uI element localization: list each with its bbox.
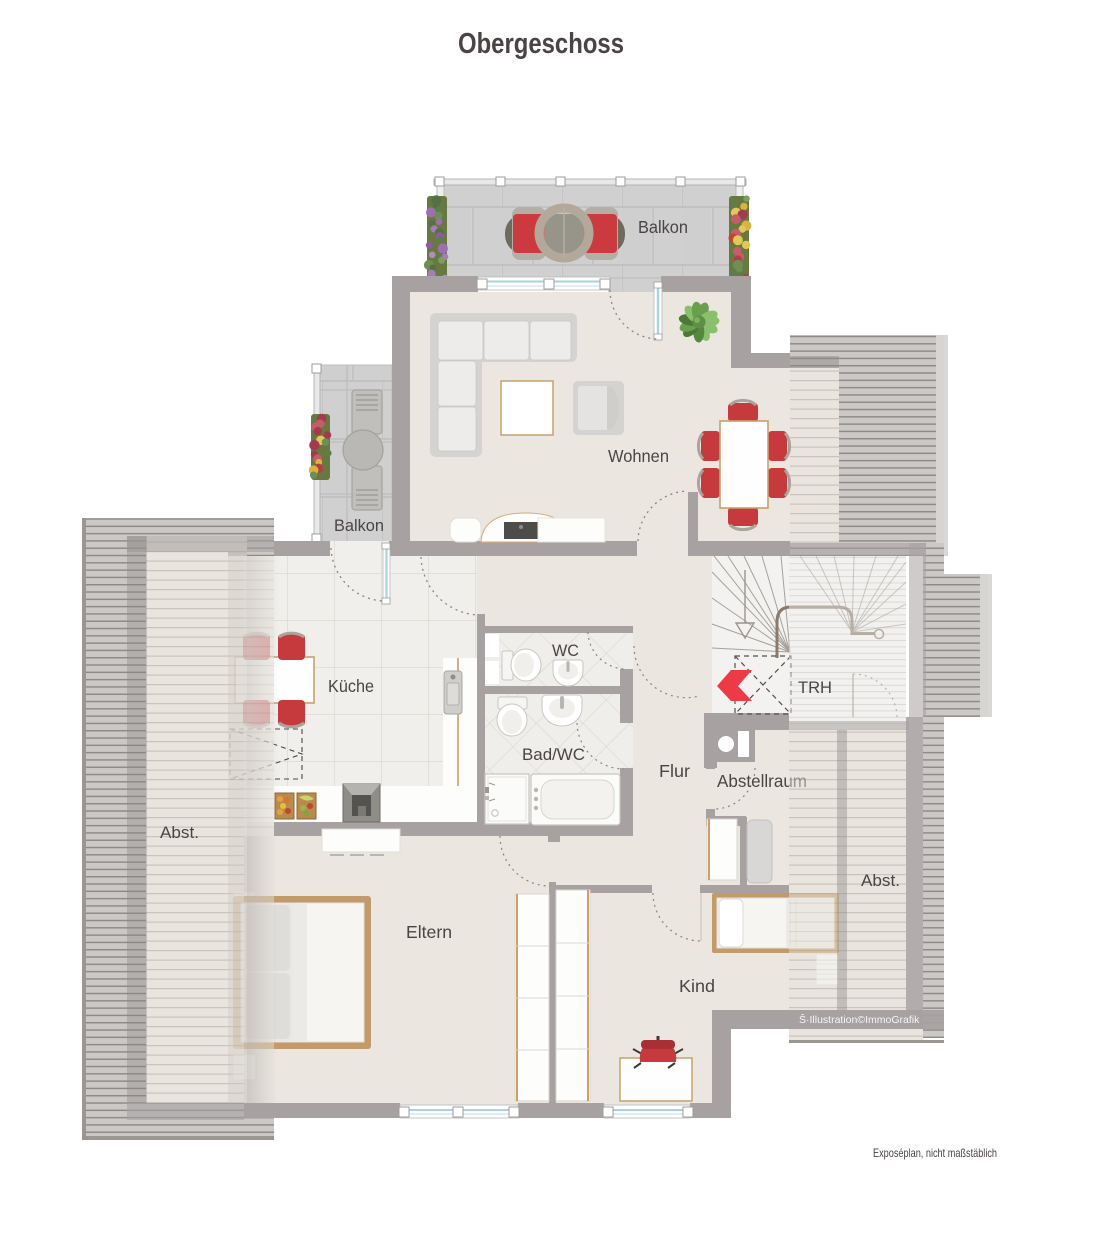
svg-text:Küche: Küche [328,676,374,696]
svg-text:Abst.: Abst. [861,871,900,890]
svg-text:Ŝ·Illustration©ImmoGrafik: Ŝ·Illustration©ImmoGrafik [799,1013,920,1026]
svg-text:Balkon: Balkon [638,217,688,237]
svg-text:Eltern: Eltern [406,922,452,942]
svg-text:Wohnen: Wohnen [608,446,669,466]
svg-text:Flur: Flur [659,761,690,781]
svg-text:Abst.: Abst. [160,823,199,842]
svg-text:WC: WC [552,641,579,660]
svg-text:TRH: TRH [798,678,832,697]
svg-text:Obergeschoss: Obergeschoss [458,28,624,60]
svg-text:Kind: Kind [679,976,715,996]
svg-text:Bad/WC: Bad/WC [522,745,585,764]
svg-text:Balkon: Balkon [334,517,384,535]
svg-text:Exposéplan, nicht maßstäblich: Exposéplan, nicht maßstäblich [873,1146,997,1160]
